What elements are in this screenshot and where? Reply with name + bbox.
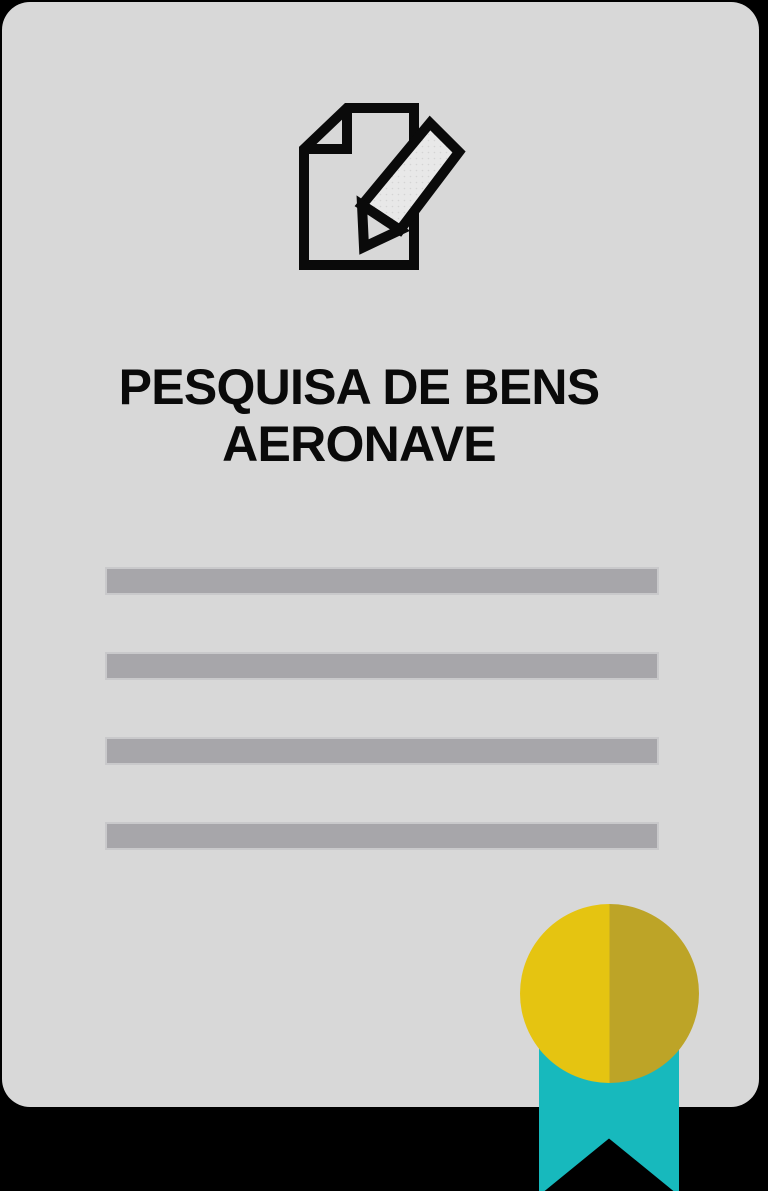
award-medal-icon bbox=[520, 904, 699, 1083]
placeholder-line bbox=[105, 822, 659, 850]
card-title: PESQUISA DE BENS AERONAVE bbox=[2, 359, 716, 473]
card-title-line1: PESQUISA DE BENS bbox=[2, 359, 716, 416]
card-title-line2: AERONAVE bbox=[2, 416, 716, 473]
placeholder-line bbox=[105, 652, 659, 680]
placeholder-lines bbox=[105, 567, 659, 907]
placeholder-line bbox=[105, 567, 659, 595]
placeholder-line bbox=[105, 737, 659, 765]
document-edit-icon bbox=[295, 97, 470, 277]
page-background: PESQUISA DE BENS AERONAVE bbox=[0, 0, 768, 1191]
